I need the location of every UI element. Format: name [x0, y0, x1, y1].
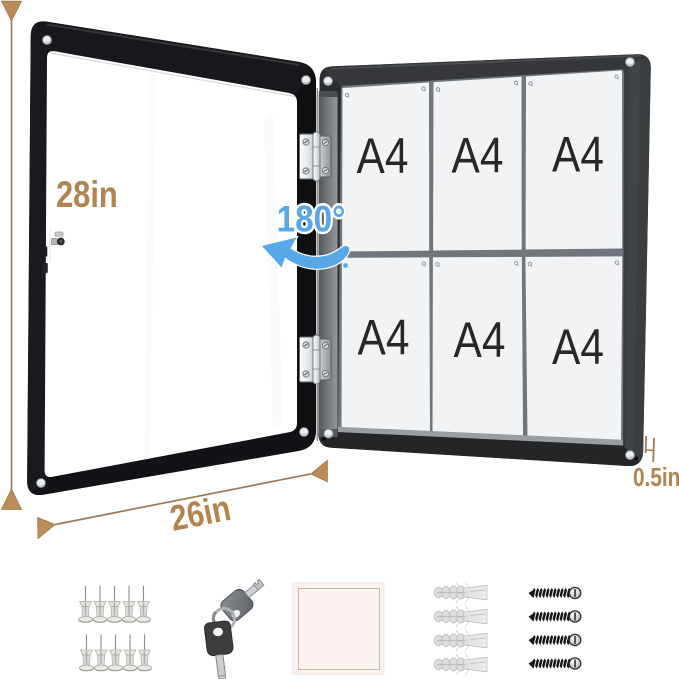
svg-text:0.5in: 0.5in — [633, 463, 679, 492]
svg-text:28in: 28in — [56, 174, 118, 215]
svg-text:A4: A4 — [452, 127, 504, 183]
svg-text:A4: A4 — [357, 128, 409, 184]
svg-text:26in: 26in — [167, 488, 234, 539]
svg-text:A4: A4 — [358, 309, 410, 365]
svg-text:A4: A4 — [552, 319, 604, 375]
svg-text:180°: 180° — [277, 199, 346, 240]
svg-text:A4: A4 — [552, 126, 604, 182]
svg-text:A4: A4 — [454, 312, 506, 368]
